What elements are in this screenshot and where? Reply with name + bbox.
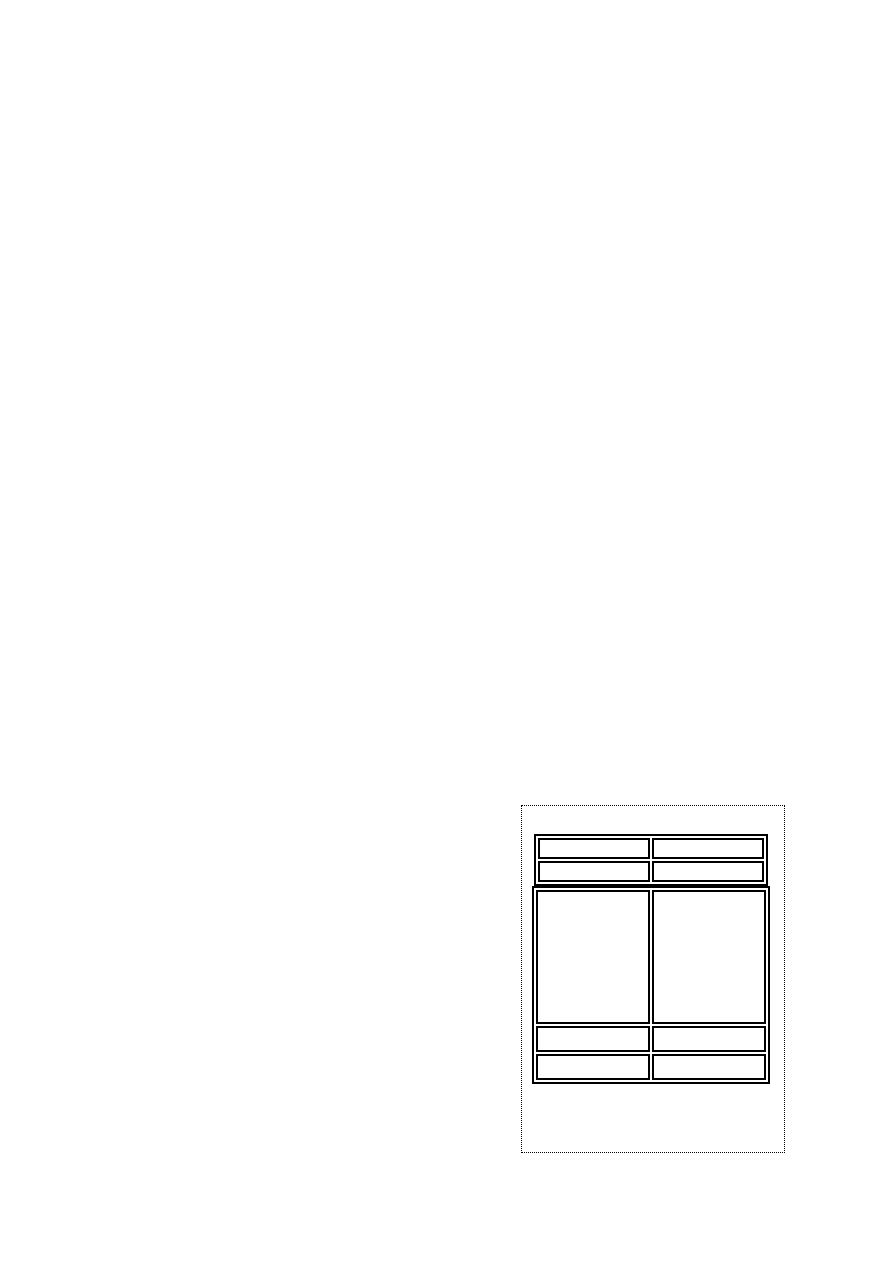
table-cell xyxy=(536,1026,650,1052)
table-cell xyxy=(538,861,650,882)
table-cell xyxy=(536,1054,650,1080)
table-row xyxy=(538,861,764,882)
body-table xyxy=(532,886,770,1084)
table-row xyxy=(538,838,764,859)
ruled-cell-right xyxy=(652,890,766,1024)
table-cell xyxy=(652,838,764,859)
table-cell xyxy=(652,1026,766,1052)
table-cell xyxy=(538,838,650,859)
ruled-block-row xyxy=(536,890,766,1024)
table-cell xyxy=(652,1054,766,1080)
table-row xyxy=(536,1026,766,1052)
table-cell xyxy=(652,861,764,882)
document-page xyxy=(0,0,893,1263)
ruled-cell-left xyxy=(536,890,650,1024)
text-frame-boundary xyxy=(521,805,785,1153)
table-row xyxy=(536,1054,766,1080)
header-table xyxy=(534,834,768,886)
